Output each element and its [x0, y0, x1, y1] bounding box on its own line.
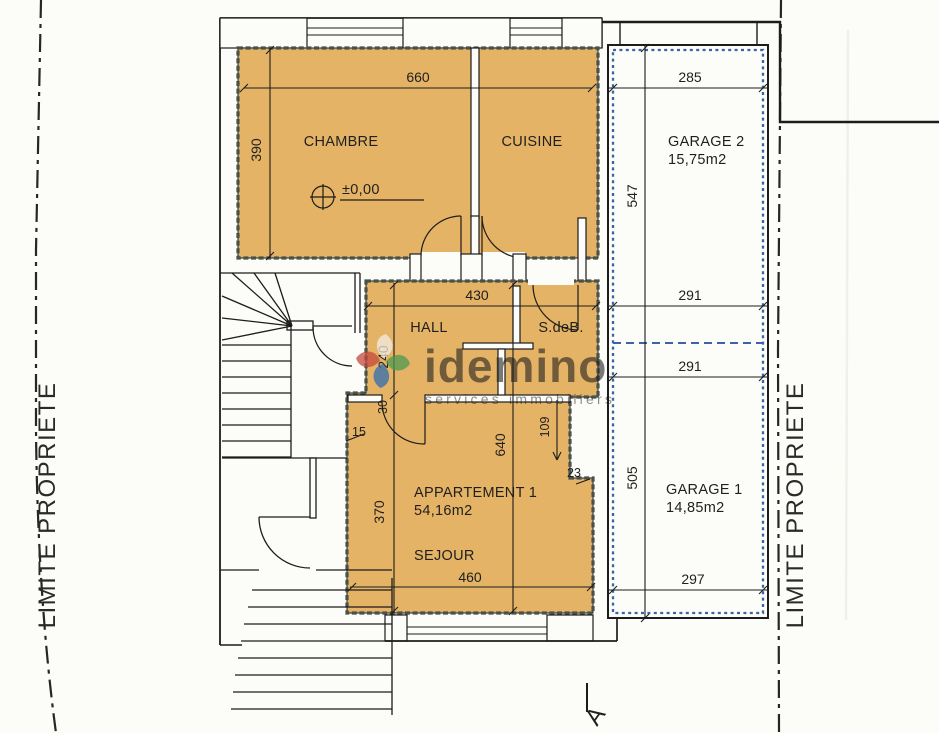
dim-291-lower: 291: [678, 358, 702, 374]
apartment-upper-block: 660 390 CHAMBRE CUISINE ±0,00: [238, 46, 598, 282]
room-label-cuisine: CUISINE: [502, 134, 563, 150]
property-label-right: LIMITE PROPRIETE: [782, 382, 809, 629]
wall-stub: [471, 216, 479, 256]
vestibule-wall: [310, 458, 316, 518]
garage-outer-wall: [608, 45, 768, 618]
door-opening: [421, 252, 461, 261]
dim-30: 30: [376, 400, 390, 414]
floor-plan-drawing: LIMITE PROPRIETE LIMITE PROPRIETE: [0, 0, 939, 733]
area-label-garage1: 14,85m2: [666, 500, 725, 516]
property-label-left: LIMITE PROPRIETE: [34, 382, 61, 629]
room-label-garage1: GARAGE 1: [666, 482, 743, 498]
wall-stub: [578, 218, 586, 282]
wall-pier: [547, 615, 593, 641]
room-label-sejour: SEJOUR: [414, 548, 475, 564]
dim-460: 460: [458, 569, 482, 585]
dim-390: 390: [248, 138, 264, 162]
dim-505: 505: [624, 466, 640, 490]
room-label-garage2: GARAGE 2: [668, 134, 745, 150]
apartment-lower-block: 430 HALL S.deB. 240 30 370 640 109 23 15…: [346, 277, 600, 615]
dim-285: 285: [678, 69, 702, 85]
floor-plan-canvas: LIMITE PROPRIETE LIMITE PROPRIETE: [0, 0, 939, 733]
area-label-apartment: 54,16m2: [414, 503, 473, 519]
area-label-garage2: 15,75m2: [668, 152, 727, 168]
wall-pier: [562, 18, 602, 48]
level-value: ±0,00: [342, 182, 380, 198]
dim-430: 430: [465, 287, 489, 303]
dim-23: 23: [567, 466, 581, 480]
watermark-brand: idemino: [424, 340, 607, 392]
dim-660: 660: [406, 69, 430, 85]
dim-547: 547: [624, 184, 640, 208]
wall-pier: [403, 18, 510, 48]
partition-hall-sdeb: [513, 286, 520, 346]
dim-291-upper: 291: [678, 287, 702, 303]
dim-640: 640: [492, 433, 508, 457]
wall-pier: [220, 18, 307, 48]
watermark-tagline: services immobiliers: [425, 391, 615, 407]
room-label-hall: HALL: [410, 320, 447, 336]
wall-stub: [461, 254, 482, 284]
room-label-apartment: APPARTEMENT 1: [414, 485, 537, 501]
dim-15: 15: [352, 425, 366, 439]
wall-pier: [385, 615, 407, 641]
partition-chambre-cuisine: [471, 48, 479, 218]
dim-109: 109: [538, 417, 552, 438]
room-label-chambre: CHAMBRE: [304, 134, 379, 150]
dim-297: 297: [681, 571, 705, 587]
garage-block: 285 547 291 291 505 297 GARAGE 2 15,75m2…: [608, 44, 768, 622]
door-opening: [528, 277, 574, 285]
room-label-sdeb: S.deB.: [538, 320, 583, 336]
dim-370: 370: [371, 500, 387, 524]
